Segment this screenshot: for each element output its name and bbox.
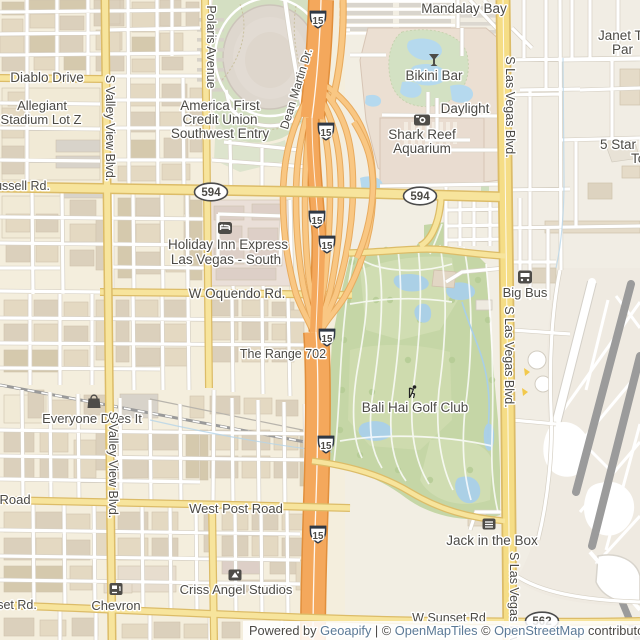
svg-text:Holiday Inn Express: Holiday Inn Express [168, 237, 288, 252]
svg-text:Southwest Entry: Southwest Entry [171, 126, 270, 141]
svg-text:Shark Reef: Shark Reef [388, 127, 456, 142]
svg-text:Bali Hai Golf Club: Bali Hai Golf Club [362, 400, 469, 415]
svg-text:Jack in the Box: Jack in the Box [446, 533, 538, 548]
svg-text:S Las Vegas Blvd.: S Las Vegas Blvd. [503, 56, 517, 157]
svg-text:15: 15 [322, 334, 333, 345]
svg-text:Aquarium: Aquarium [393, 141, 451, 156]
svg-text:594: 594 [201, 187, 221, 199]
svg-text:Credit Union: Credit Union [182, 112, 257, 127]
svg-text:To: To [631, 151, 640, 166]
svg-text:West Post Road: West Post Road [189, 501, 283, 516]
svg-text:Bikini Bar: Bikini Bar [405, 68, 463, 83]
svg-text:America First: America First [180, 98, 260, 113]
svg-text:W Oquendo Rd.: W Oquendo Rd. [189, 286, 286, 301]
svg-text:594: 594 [410, 191, 430, 203]
svg-text:Polaris Avenue: Polaris Avenue [204, 5, 218, 88]
svg-text:15: 15 [313, 531, 324, 542]
svg-text:Criss Angel Studios: Criss Angel Studios [180, 582, 293, 597]
svg-text:Powered by Geoapify | © OpenMa: Powered by Geoapify | © OpenMapTiles © O… [249, 623, 640, 638]
svg-text:S Las Vegas Blvd.: S Las Vegas Blvd. [502, 306, 516, 407]
svg-text:set Rd.: set Rd. [0, 598, 37, 612]
svg-text:Las Vegas - South: Las Vegas - South [171, 252, 281, 267]
svg-text:Diablo Drive: Diablo Drive [10, 70, 84, 85]
svg-text:15: 15 [312, 216, 323, 227]
svg-text:Chevron: Chevron [91, 598, 140, 613]
svg-text:Daylight: Daylight [441, 101, 490, 116]
svg-text:15: 15 [322, 241, 333, 252]
svg-text:Mandalay Bay: Mandalay Bay [421, 1, 507, 16]
svg-text:Allegiant: Allegiant [17, 98, 67, 113]
svg-text:Road: Road [0, 492, 31, 507]
svg-text:15: 15 [313, 16, 324, 27]
svg-text:5 Star H: 5 Star H [600, 137, 640, 152]
svg-text:Janet T: Janet T [598, 28, 640, 43]
svg-text:Russell Rd.: Russell Rd. [0, 179, 50, 193]
svg-text:Par: Par [612, 42, 634, 57]
svg-text:15: 15 [321, 128, 332, 139]
svg-text:Stadium Lot Z: Stadium Lot Z [1, 112, 82, 127]
svg-text:Big Bus: Big Bus [503, 285, 548, 300]
svg-text:The Range 702: The Range 702 [240, 347, 326, 361]
svg-text:S Valley View Blvd.: S Valley View Blvd. [106, 412, 120, 519]
svg-text:15: 15 [321, 441, 332, 452]
svg-text:Everyone Does It: Everyone Does It [42, 411, 142, 426]
svg-text:S Valley View Blvd.: S Valley View Blvd. [103, 75, 117, 182]
